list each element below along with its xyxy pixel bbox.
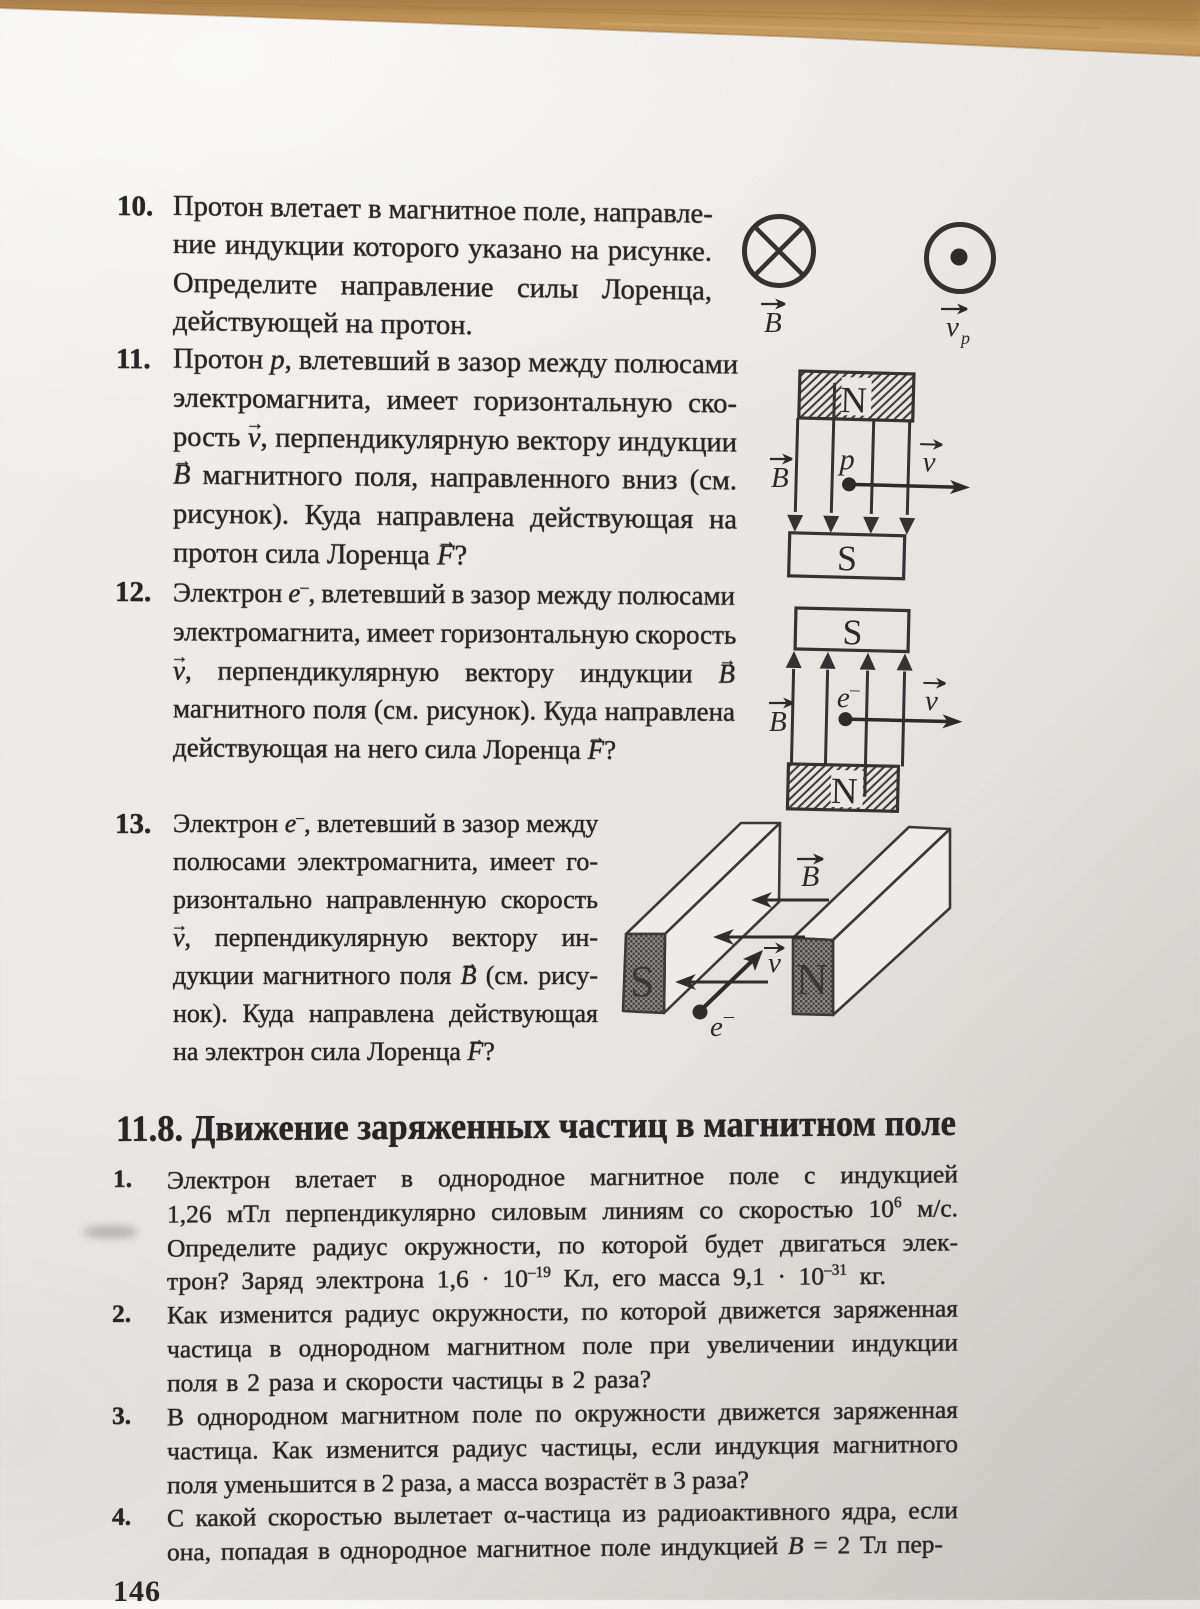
svg-text:p: p bbox=[837, 443, 855, 476]
svg-text:–: – bbox=[723, 1005, 735, 1027]
svg-text:e: e bbox=[837, 682, 851, 714]
svg-text:p: p bbox=[959, 328, 970, 348]
svg-text:B: B bbox=[801, 860, 819, 893]
svg-text:e: e bbox=[710, 1011, 723, 1043]
svg-text:v: v bbox=[922, 446, 936, 478]
svg-text:–: – bbox=[849, 679, 860, 700]
svg-text:B: B bbox=[769, 706, 787, 738]
svg-text:B: B bbox=[764, 307, 782, 339]
svg-text:N: N bbox=[840, 380, 868, 422]
svg-text:B: B bbox=[771, 462, 789, 494]
svg-text:v: v bbox=[768, 947, 781, 979]
svg-text:S: S bbox=[837, 538, 858, 579]
svg-text:N: N bbox=[796, 955, 828, 1004]
svg-text:v: v bbox=[946, 311, 959, 343]
svg-text:v: v bbox=[925, 685, 939, 717]
svg-text:S: S bbox=[630, 957, 654, 1006]
svg-text:S: S bbox=[842, 612, 863, 652]
